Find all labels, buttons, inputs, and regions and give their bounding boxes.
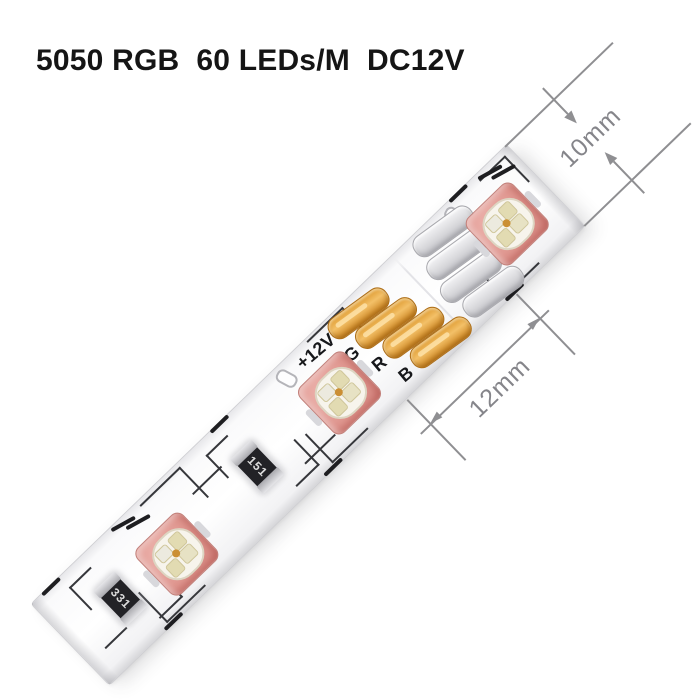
led-strip-scene: +12V G R B 331 151 — [32, 145, 585, 684]
dimension-label-12mm: 12mm — [464, 352, 537, 424]
product-image: 5050 RGB 60 LEDs/M DC12V — [0, 0, 700, 700]
extension-line — [407, 399, 467, 461]
page-title: 5050 RGB 60 LEDs/M DC12V — [36, 44, 465, 78]
dimension-line — [542, 87, 568, 114]
dimension-line — [613, 161, 645, 194]
extension-line — [516, 293, 576, 355]
